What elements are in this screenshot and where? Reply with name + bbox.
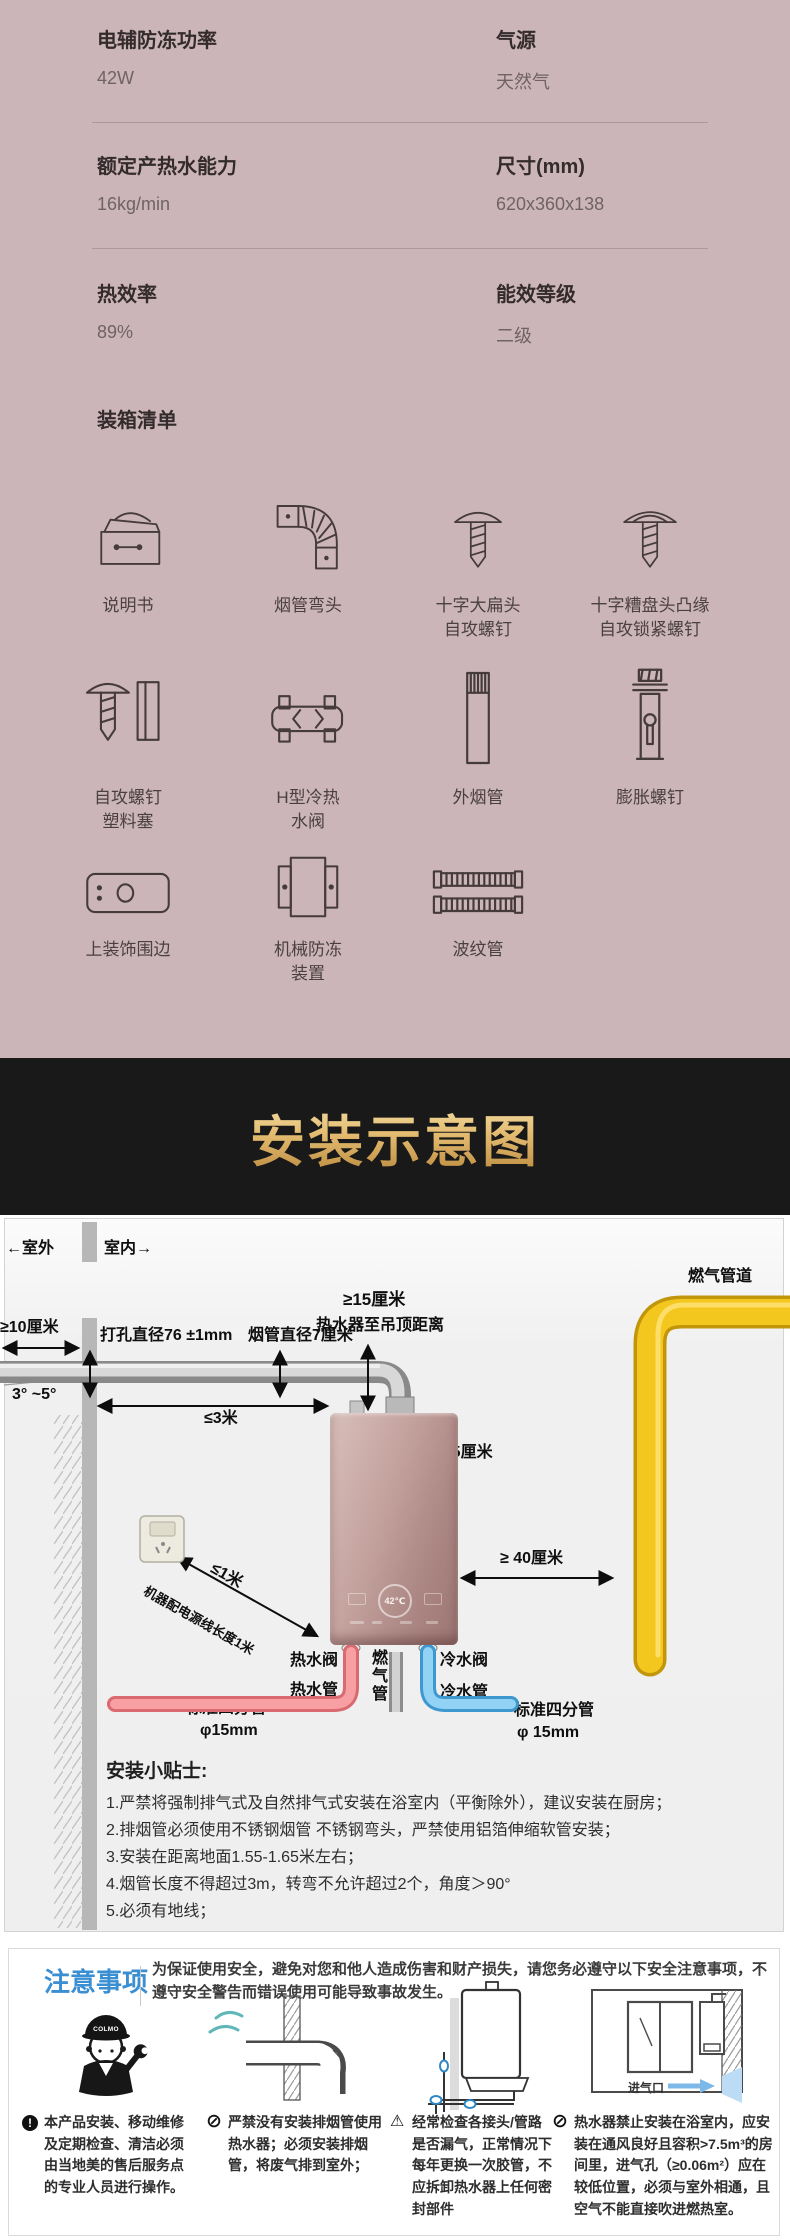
packing-item-label: 十字大扁头 自攻螺钉 (436, 594, 521, 642)
spec-value: 16kg/min (97, 194, 170, 215)
packing-item: 十字大扁头 自攻螺钉 (398, 496, 558, 642)
divider (92, 122, 708, 123)
packing-item-label: 外烟管 (453, 786, 504, 810)
product-detail-page: 电辅防冻功率 42W 气源 天然气 额定产热水能力 16kg/min 尺寸(mm… (0, 0, 790, 2240)
heater-button-cluster (424, 1593, 442, 1605)
packing-item-label: 膨胀螺钉 (616, 786, 684, 810)
ventilated-room-illustration (592, 1990, 742, 2103)
heater-indicator (426, 1621, 438, 1624)
power-socket (140, 1516, 184, 1562)
packing-item-label: H型冷热 水阀 (276, 786, 339, 834)
spec-label: 额定产热水能力 (97, 150, 237, 179)
notice-illustrations (0, 1948, 790, 2238)
air-inlet-label: 进气口 (628, 2079, 664, 2096)
spec-value: 天然气 (496, 68, 550, 94)
flue-elbow-icon (268, 496, 348, 580)
packing-item: 膨胀螺钉 (560, 664, 740, 810)
mascot-brand-label: COLMO (90, 2026, 122, 2033)
flue-exhaust-illustration (210, 1996, 344, 2100)
h-valve-icon (260, 664, 356, 772)
outer-flue-pipe-icon (451, 664, 505, 772)
heater-display: 42℃ (378, 1584, 412, 1618)
hot-water-pipe (115, 1652, 351, 1704)
pan-head-screw-icon (442, 496, 514, 580)
spec-label: 电辅防冻功率 (97, 24, 217, 53)
heater-temp: 42℃ (385, 1596, 406, 1607)
packing-item-label: 上装饰围边 (86, 938, 171, 962)
heater-indicator (350, 1621, 364, 1624)
wall-hatching (54, 1415, 82, 1928)
top-trim-icon (80, 862, 176, 924)
packing-item-label: 十字糟盘头凸缘 自攻锁紧螺钉 (591, 594, 710, 642)
packing-item: 波纹管 (398, 862, 558, 962)
heater-indicator (400, 1621, 412, 1624)
water-heater-unit: 42℃ (330, 1413, 458, 1645)
installation-banner: 安装示意图 (0, 1058, 790, 1215)
packing-item: 烟管弯头 (228, 496, 388, 618)
spec-value: 89% (97, 322, 133, 343)
divider (92, 248, 708, 249)
spec-label: 热效率 (97, 278, 157, 307)
packing-item-label: 机械防冻 装置 (274, 938, 342, 986)
spec-value: 42W (97, 68, 134, 89)
wall-lower (82, 1318, 97, 1930)
spec-label: 能效等级 (496, 278, 576, 307)
heater-indicator (372, 1621, 382, 1624)
wall-upper (82, 1222, 97, 1262)
flue-pipe (0, 1366, 414, 1415)
gas-supply-pipe (650, 1305, 790, 1660)
packing-item-label: 烟管弯头 (274, 594, 342, 618)
packing-item-label: 波纹管 (453, 938, 504, 962)
heater-button-cluster (348, 1593, 366, 1605)
packing-item: 外烟管 (398, 664, 558, 810)
spec-value: 620x360x138 (496, 194, 604, 215)
corrugated-pipe-icon (428, 862, 528, 924)
manual-icon (86, 496, 170, 580)
packing-item: 机械防冻 装置 (228, 850, 388, 986)
expansion-bolt-icon (622, 664, 678, 772)
flange-screw-icon (614, 496, 686, 580)
antifreeze-device-icon (265, 850, 351, 924)
banner-title: 安装示意图 (250, 1097, 540, 1177)
packing-item: 十字糟盘头凸缘 自攻锁紧螺钉 (560, 496, 740, 642)
packing-item-label: 说明书 (103, 594, 154, 618)
heater-hose-illustration (428, 1982, 528, 2114)
spec-label: 尺寸(mm) (496, 150, 585, 179)
packing-item: H型冷热 水阀 (228, 664, 388, 834)
packing-list-title: 装箱清单 (97, 404, 177, 433)
cold-water-pipe (428, 1652, 511, 1704)
packing-item: 自攻螺钉 塑料塞 (48, 664, 208, 834)
spec-value: 二级 (496, 322, 532, 348)
packing-item-label: 自攻螺钉 塑料塞 (94, 786, 162, 834)
screw-plug-icon (80, 664, 176, 772)
packing-item: 上装饰围边 (48, 862, 208, 962)
packing-item: 说明书 (48, 496, 208, 618)
spec-label: 气源 (496, 24, 536, 53)
